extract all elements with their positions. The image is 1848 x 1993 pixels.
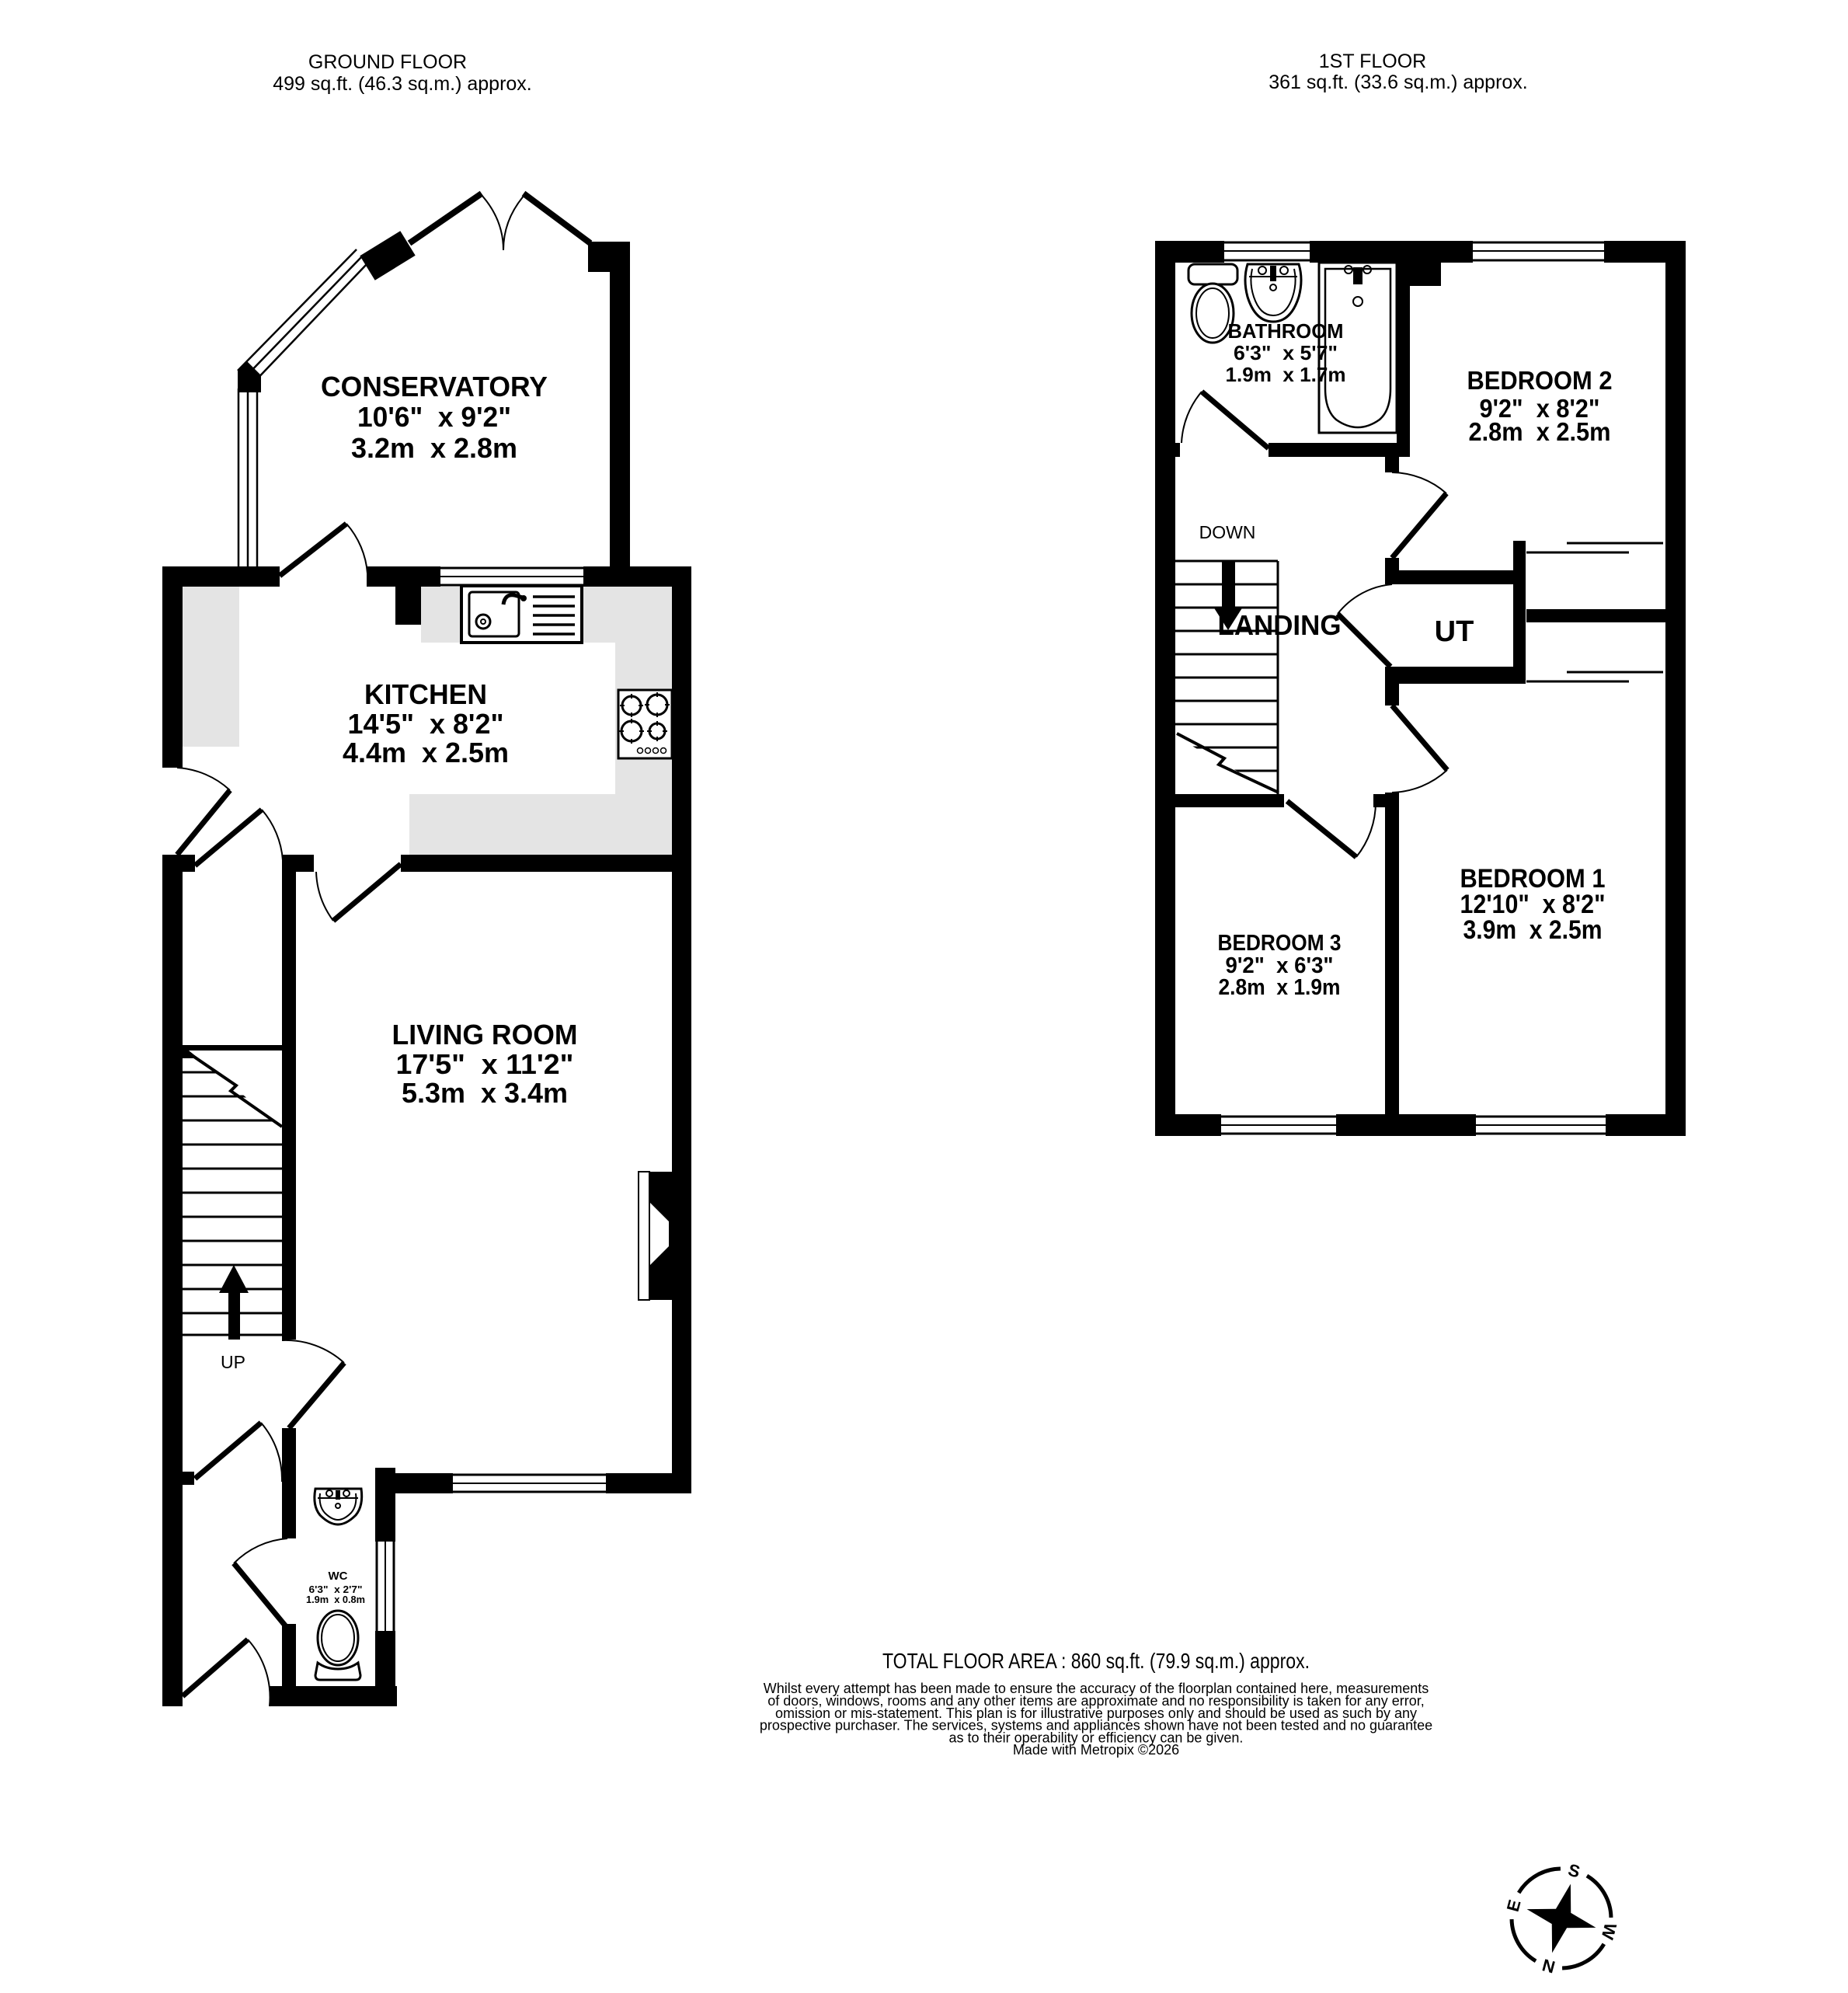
svg-text:BEDROOM 3: BEDROOM 3	[1218, 931, 1342, 956]
svg-text:1.9m x 0.8m: 1.9m x 0.8m	[306, 1594, 365, 1605]
svg-text:DOWN: DOWN	[1199, 522, 1256, 542]
svg-text:BATHROOM: BATHROOM	[1228, 319, 1344, 343]
svg-text:361 sq.ft. (33.6 sq.m.) approx: 361 sq.ft. (33.6 sq.m.) approx.	[1269, 71, 1528, 93]
svg-text:2.8m x 1.9m: 2.8m x 1.9m	[1219, 975, 1341, 1000]
svg-text:LIVING ROOM: LIVING ROOM	[392, 1019, 578, 1051]
svg-text:5.3m x 3.4m: 5.3m x 3.4m	[402, 1077, 568, 1109]
svg-text:17'5" x 11'2": 17'5" x 11'2"	[396, 1048, 574, 1080]
svg-text:3.9m x 2.5m: 3.9m x 2.5m	[1463, 915, 1603, 945]
svg-text:499 sq.ft. (46.3 sq.m.) approx: 499 sq.ft. (46.3 sq.m.) approx.	[273, 73, 532, 95]
svg-text:LANDING: LANDING	[1218, 609, 1342, 641]
svg-text:TOTAL FLOOR AREA : 860 sq.ft.: TOTAL FLOOR AREA : 860 sq.ft. (79.9 sq.m…	[882, 1649, 1310, 1673]
svg-text:14'5" x 8'2": 14'5" x 8'2"	[348, 708, 504, 740]
svg-text:GROUND FLOOR: GROUND FLOOR	[308, 51, 467, 73]
svg-text:KITCHEN: KITCHEN	[364, 678, 487, 710]
svg-text:4.4m x 2.5m: 4.4m x 2.5m	[343, 737, 509, 768]
svg-text:6'3" x 5'7": 6'3" x 5'7"	[1234, 341, 1338, 364]
svg-text:WC: WC	[329, 1570, 348, 1583]
svg-text:BEDROOM 2: BEDROOM 2	[1467, 366, 1613, 395]
svg-text:UP: UP	[221, 1352, 245, 1372]
svg-text:3.2m x 2.8m: 3.2m x 2.8m	[351, 432, 517, 464]
svg-text:Made with Metropix ©2026: Made with Metropix ©2026	[1013, 1742, 1179, 1758]
svg-text:UT: UT	[1435, 615, 1474, 648]
svg-text:2.8m x 2.5m: 2.8m x 2.5m	[1469, 417, 1611, 446]
svg-text:CONSERVATORY: CONSERVATORY	[321, 371, 548, 402]
svg-text:1ST FLOOR: 1ST FLOOR	[1319, 51, 1426, 72]
svg-text:1.9m x 1.7m: 1.9m x 1.7m	[1226, 363, 1346, 386]
svg-text:10'6" x 9'2": 10'6" x 9'2"	[357, 401, 511, 433]
